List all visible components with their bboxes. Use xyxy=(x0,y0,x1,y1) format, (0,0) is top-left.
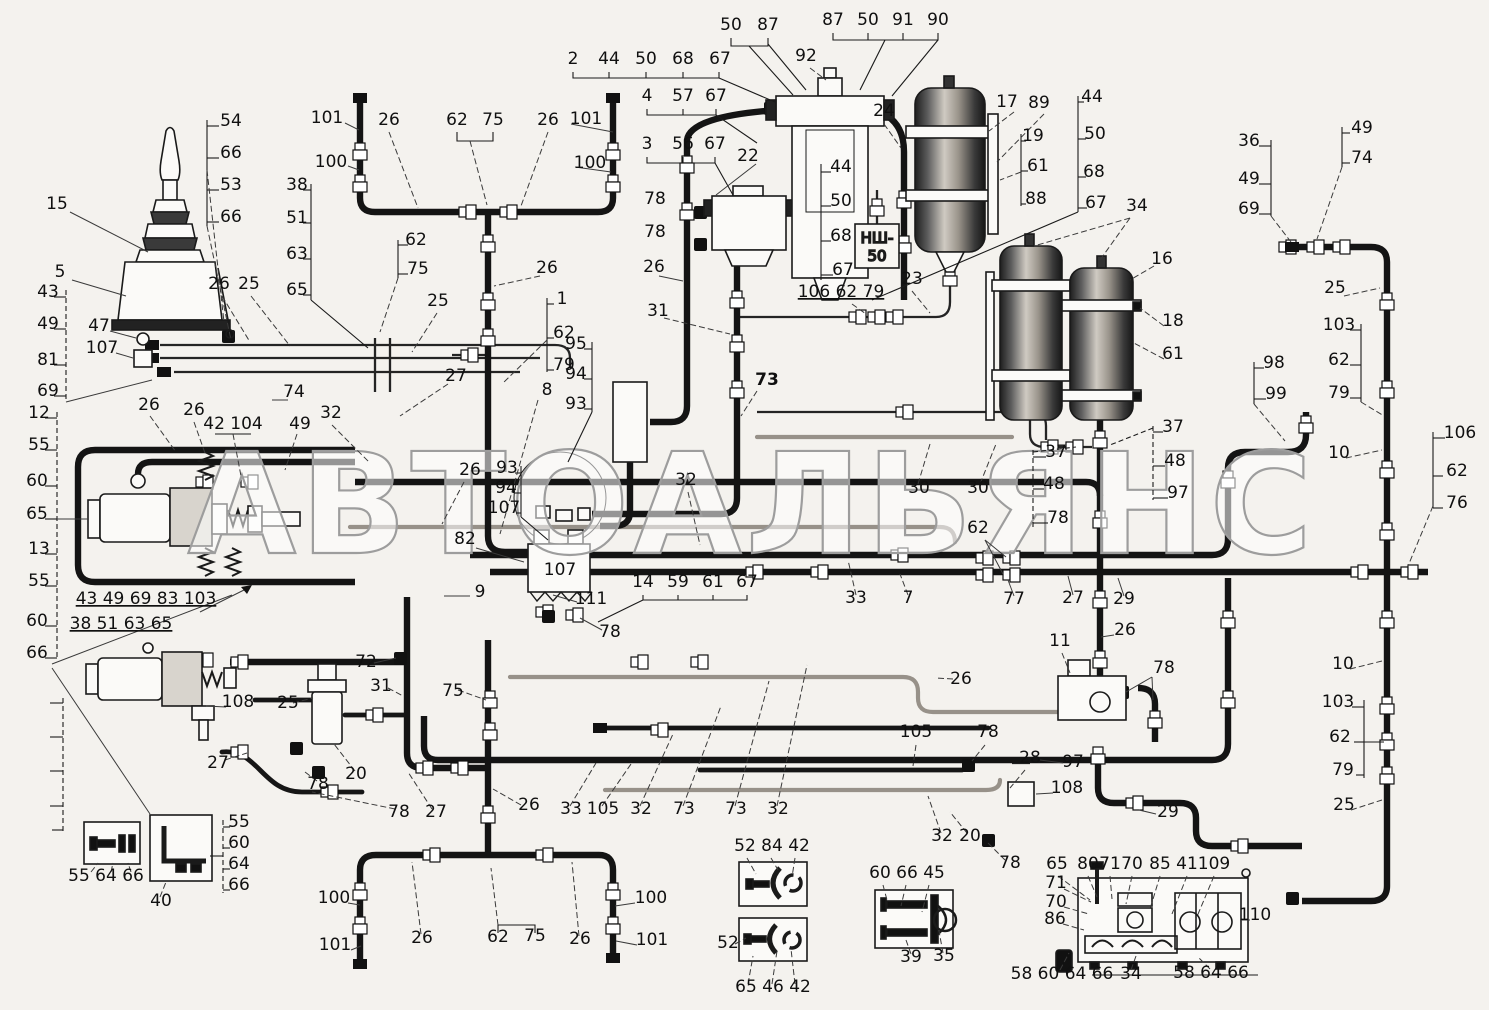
callout-leader xyxy=(664,318,730,334)
callout-leader xyxy=(491,868,498,925)
part-label-65: 65 xyxy=(26,504,48,524)
part-label-69: 69 xyxy=(37,381,59,401)
pipe-union-fitting xyxy=(353,883,367,900)
part-label-63: 63 xyxy=(286,244,308,264)
part-label-50: 50 xyxy=(635,49,657,69)
part-label-62: 62 xyxy=(1446,461,1468,481)
part-label-53: 53 xyxy=(220,175,242,195)
pipe-union-fitting xyxy=(730,291,744,308)
part-label-67: 67 xyxy=(709,49,731,69)
part-label-74: 74 xyxy=(1351,148,1373,168)
pipe-union-fitting xyxy=(680,156,694,173)
part-label-26: 26 xyxy=(950,669,972,689)
nsh-50-pump-box: НШ- 50 xyxy=(855,224,899,268)
pipe-union-fitting xyxy=(1231,839,1248,853)
part-label-27: 27 xyxy=(207,753,229,773)
part-label-66: 66 xyxy=(220,143,242,163)
elbow-fitting xyxy=(1286,892,1299,905)
callout-leader xyxy=(912,291,930,313)
part-label-110: 110 xyxy=(1239,905,1271,925)
part-label-62: 62 xyxy=(1329,727,1351,747)
elbow-fitting xyxy=(542,610,555,623)
callout-bracket xyxy=(833,33,938,40)
hose-end-cap xyxy=(353,93,367,103)
part-label-26: 26 xyxy=(208,274,230,294)
hose-end-cap xyxy=(606,953,620,963)
pipe-union-fitting xyxy=(353,143,367,160)
part-label-101: 101 xyxy=(636,930,668,950)
part-label-67: 67 xyxy=(705,86,727,106)
part-label-95: 95 xyxy=(565,334,587,354)
part-label-78: 78 xyxy=(388,802,410,822)
part-label-78: 78 xyxy=(1153,658,1175,678)
part-label-76: 76 xyxy=(1446,493,1468,513)
part-label-107: 107 xyxy=(86,338,118,358)
callout-bracket xyxy=(719,78,775,102)
part-label-70: 70 xyxy=(1121,854,1143,874)
pipe-union-fitting xyxy=(606,883,620,900)
part-label-62: 62 xyxy=(967,518,989,538)
part-label-78: 78 xyxy=(999,853,1021,873)
part-label-105: 105 xyxy=(900,722,932,742)
part-label-49: 49 xyxy=(289,414,311,434)
part-label-73: 73 xyxy=(755,370,779,390)
pipe-union-fitting xyxy=(1380,523,1394,540)
pipe-union-fitting xyxy=(451,761,468,775)
kit-box-40 xyxy=(150,815,212,881)
kit-box-55-64-66 xyxy=(84,822,140,864)
callout-leader xyxy=(572,862,579,936)
gray-hose xyxy=(605,780,1000,790)
part-label-61: 61 xyxy=(702,572,724,592)
callout-leader xyxy=(470,141,487,205)
callout-leader xyxy=(312,792,395,809)
part-label-79: 79 xyxy=(1328,383,1350,403)
pipe-union-fitting xyxy=(1093,591,1107,608)
part-label-74: 74 xyxy=(283,382,305,402)
part-label-50: 50 xyxy=(1084,124,1106,144)
part-label-30: 30 xyxy=(967,478,989,498)
part-label-78: 78 xyxy=(644,189,666,209)
part-label-26: 26 xyxy=(138,395,160,415)
pipe-union-fitting xyxy=(536,848,553,862)
pipe-union-fitting xyxy=(1093,651,1107,668)
callout-bracket xyxy=(731,38,768,46)
pipe-union-fitting xyxy=(896,405,913,419)
callout-bracket xyxy=(647,109,716,115)
part-label-78: 78 xyxy=(1047,508,1069,528)
part-label-97: 97 xyxy=(1167,483,1189,503)
pipe-union-fitting xyxy=(416,761,433,775)
part-label-25: 25 xyxy=(277,693,299,713)
part-label-59: 59 xyxy=(667,572,689,592)
nsh-50-label-line1: НШ- xyxy=(861,229,894,247)
part-label-25: 25 xyxy=(427,291,449,311)
part-label-101: 101 xyxy=(311,108,343,128)
part-label-49: 49 xyxy=(1238,169,1260,189)
pipe-union-fitting xyxy=(1380,611,1394,628)
part-label-58-60-64-66: 58 60 64 66 xyxy=(1011,964,1114,984)
watermark-text: АВТОАЛЬЯНС xyxy=(188,424,1317,587)
callout-leader xyxy=(521,132,548,206)
pipe-union-fitting xyxy=(1091,747,1105,764)
part-label-52-84-42: 52 84 42 xyxy=(734,836,810,856)
part-label-77: 77 xyxy=(1003,589,1025,609)
part-label-25: 25 xyxy=(1333,795,1355,815)
part-label-55: 55 xyxy=(28,435,50,455)
pipe-union-fitting xyxy=(730,335,744,352)
part-label-103: 103 xyxy=(1322,692,1354,712)
part-label-32: 32 xyxy=(630,799,652,819)
callout-leader xyxy=(412,862,421,934)
part-label-69: 69 xyxy=(1238,199,1260,219)
part-label-43: 43 xyxy=(37,282,59,302)
part-label-34: 34 xyxy=(1126,196,1148,216)
part-label-67: 67 xyxy=(832,260,854,280)
part-label-92: 92 xyxy=(795,46,817,66)
part-label-12: 12 xyxy=(28,403,50,423)
part-label-79: 79 xyxy=(1332,760,1354,780)
part-label-39: 39 xyxy=(900,947,922,967)
part-label-42-104: 42 104 xyxy=(203,414,262,434)
part-label-50: 50 xyxy=(857,10,879,30)
pipe-union-fitting xyxy=(651,723,668,737)
callout-bracket xyxy=(715,163,733,195)
part-label-26: 26 xyxy=(183,400,205,420)
part-label-44: 44 xyxy=(598,49,620,69)
callout-leader xyxy=(1408,506,1433,566)
callout-leader xyxy=(116,353,133,358)
pipe-union-fitting xyxy=(1126,796,1143,810)
part-label-25: 25 xyxy=(238,274,260,294)
part-label-35: 35 xyxy=(933,946,955,966)
part-label-50: 50 xyxy=(830,191,852,211)
callout-leader xyxy=(616,941,637,945)
callout-leader xyxy=(1350,661,1382,669)
part-label-60-66-45: 60 66 45 xyxy=(869,863,945,883)
part-label-49: 49 xyxy=(1351,118,1373,138)
pipe-union-fitting xyxy=(481,235,495,252)
callout-leader xyxy=(380,278,398,332)
pipe-union-fitting xyxy=(353,917,367,934)
part-label-54: 54 xyxy=(220,111,242,131)
part-label-15: 15 xyxy=(46,194,68,214)
parts-diagram-page: НШ- 50 xyxy=(0,0,1489,1010)
part-label-31: 31 xyxy=(647,301,669,321)
callout-leader xyxy=(70,212,148,252)
part-label-19: 19 xyxy=(1022,126,1044,146)
pipe-union-fitting xyxy=(1221,691,1235,708)
part-label-67: 67 xyxy=(736,572,758,592)
pipe-union-fitting xyxy=(606,175,620,192)
elbow-fitting xyxy=(290,742,303,755)
part-label-49: 49 xyxy=(37,314,59,334)
pipe-union-fitting xyxy=(1221,611,1235,628)
hose-end-cap xyxy=(593,723,607,733)
pipe-union-fitting xyxy=(1148,711,1162,728)
gray-hose xyxy=(510,677,1058,712)
nsh-50-label-line2: 50 xyxy=(867,247,886,265)
hose-end-cap xyxy=(157,367,171,377)
part-label-66: 66 xyxy=(228,875,250,895)
callout-leader xyxy=(1100,218,1130,260)
part-label-86: 86 xyxy=(1044,909,1066,929)
part-label-68: 68 xyxy=(830,226,852,246)
part-label-3: 3 xyxy=(642,134,653,154)
hose-end-cap xyxy=(606,93,620,103)
part-label-23: 23 xyxy=(901,269,923,289)
pipe-union-fitting xyxy=(1307,240,1324,254)
part-label-68: 68 xyxy=(1083,162,1105,182)
part-label-58-64-66: 58 64 66 xyxy=(1173,963,1249,983)
part-label-37: 37 xyxy=(1162,417,1184,437)
part-label-98: 98 xyxy=(1263,353,1285,373)
part-label-106: 106 xyxy=(1444,423,1476,443)
part-label-90: 90 xyxy=(927,10,949,30)
part-label-34: 34 xyxy=(1120,964,1142,984)
part-label-20: 20 xyxy=(345,764,367,784)
part-label-27: 27 xyxy=(425,802,447,822)
part-label-105: 105 xyxy=(587,799,619,819)
part-label-100: 100 xyxy=(574,153,606,173)
part-label-75: 75 xyxy=(482,110,504,130)
part-label-60: 60 xyxy=(26,471,48,491)
part-label-47: 47 xyxy=(88,316,110,336)
part-label-87: 87 xyxy=(822,10,844,30)
part-label-78: 78 xyxy=(599,622,621,642)
part-label-82: 82 xyxy=(454,529,476,549)
part-label-94: 94 xyxy=(495,478,517,498)
part-label-18: 18 xyxy=(1162,311,1184,331)
pipe-union-fitting xyxy=(461,348,478,362)
part-label-93: 93 xyxy=(565,394,587,414)
pipe-union-fitting xyxy=(1401,565,1418,579)
pipe-union-fitting xyxy=(481,806,495,823)
part-label-32: 32 xyxy=(320,403,342,423)
part-label-26: 26 xyxy=(378,110,400,130)
part-label-40: 40 xyxy=(150,891,172,911)
part-label-78: 78 xyxy=(977,722,999,742)
part-label-26: 26 xyxy=(569,929,591,949)
elbow-fitting xyxy=(982,834,995,847)
part-label-32: 32 xyxy=(675,470,697,490)
pipe-union-fitting xyxy=(1380,697,1394,714)
part-label-72: 72 xyxy=(355,652,377,672)
pipe-union-fitting xyxy=(481,329,495,346)
part-label-75: 75 xyxy=(524,926,546,946)
part-label-62: 62 xyxy=(1328,350,1350,370)
hydraulic-piping-diagram: НШ- 50 xyxy=(0,0,1489,1010)
part-label-100: 100 xyxy=(635,888,667,908)
part-label-100: 100 xyxy=(315,152,347,172)
part-label-26: 26 xyxy=(643,257,665,277)
part-label-94: 94 xyxy=(565,364,587,384)
protection-valve-11 xyxy=(1058,660,1126,720)
callout-leader xyxy=(150,416,176,452)
callout-leader xyxy=(1344,288,1380,296)
callout-leader xyxy=(72,280,126,296)
pipe-union-fitting xyxy=(1351,565,1368,579)
pipe-union-fitting xyxy=(1380,381,1394,398)
pipe-union-fitting xyxy=(481,293,495,310)
part-label-75: 75 xyxy=(407,259,429,279)
part-label-5: 5 xyxy=(55,262,66,282)
pipe-union-fitting xyxy=(353,175,367,192)
part-label-50: 50 xyxy=(720,15,742,35)
part-label-89: 89 xyxy=(1028,93,1050,113)
part-label-33: 33 xyxy=(845,588,867,608)
part-label-103: 103 xyxy=(1323,315,1355,335)
kit-box-52-84-42 xyxy=(739,862,807,906)
callout-bracket xyxy=(311,300,368,348)
callout-leader xyxy=(110,331,136,338)
part-label-7: 7 xyxy=(903,588,914,608)
kit-box-65-46-42 xyxy=(739,918,807,961)
part-label-55: 55 xyxy=(228,812,250,832)
part-label-38-51-63-65: 38 51 63 65 xyxy=(70,614,173,634)
filter-component-20 xyxy=(308,664,346,744)
callout-leader xyxy=(389,132,418,208)
part-label-27: 27 xyxy=(445,366,467,386)
part-label-65-46-42: 65 46 42 xyxy=(735,977,811,997)
part-label-14: 14 xyxy=(632,572,654,592)
callout-bracket xyxy=(749,46,793,95)
callout-leader xyxy=(640,734,673,806)
callout-leader xyxy=(494,276,540,286)
callout-leader xyxy=(735,681,769,806)
part-label-101: 101 xyxy=(319,935,351,955)
callout-bracket xyxy=(647,157,715,163)
pipe-union-fitting xyxy=(1380,767,1394,784)
part-label-87: 87 xyxy=(757,15,779,35)
part-label-17: 17 xyxy=(996,92,1018,112)
part-label-88: 88 xyxy=(1025,189,1047,209)
part-label-108: 108 xyxy=(1051,778,1083,798)
callout-leader xyxy=(1361,402,1384,416)
pipe-union-fitting xyxy=(366,708,383,722)
part-label-31: 31 xyxy=(370,676,392,696)
part-label-26: 26 xyxy=(1114,620,1136,640)
hose-end-cap xyxy=(353,959,367,969)
part-label-26: 26 xyxy=(459,460,481,480)
part-label-10: 10 xyxy=(1332,654,1354,674)
part-label-100: 100 xyxy=(318,888,350,908)
fitting-107 xyxy=(134,350,152,367)
part-label-4: 4 xyxy=(642,86,653,106)
part-label-61: 61 xyxy=(1162,344,1184,364)
part-label-109: 109 xyxy=(1198,854,1230,874)
part-label-65: 65 xyxy=(1046,854,1068,874)
callout-leader xyxy=(1140,308,1164,326)
part-label-56: 56 xyxy=(672,134,694,154)
part-label-73: 73 xyxy=(725,799,747,819)
hose-end-cap xyxy=(1285,242,1299,252)
part-label-25: 25 xyxy=(1324,278,1346,298)
callout-leader xyxy=(615,903,635,906)
part-label-48: 48 xyxy=(1164,451,1186,471)
part-label-78: 78 xyxy=(644,222,666,242)
callout-leader xyxy=(1351,800,1382,810)
part-label-13: 13 xyxy=(28,539,50,559)
callout-leader xyxy=(1317,167,1342,239)
callout-leader xyxy=(493,789,521,805)
part-label-107: 107 xyxy=(488,498,520,518)
pipe-union-fitting xyxy=(459,205,476,219)
callout-bracket xyxy=(860,40,885,90)
part-label-65: 65 xyxy=(286,280,308,300)
pipe-union-fitting xyxy=(500,205,517,219)
part-label-57: 57 xyxy=(672,86,694,106)
part-label-38: 38 xyxy=(286,175,308,195)
part-label-26: 26 xyxy=(518,795,540,815)
part-label-55-64-66: 55 64 66 xyxy=(68,866,144,886)
part-label-62: 62 xyxy=(487,927,509,947)
part-label-85: 85 xyxy=(1149,854,1171,874)
fitting-47 xyxy=(137,333,149,345)
part-label-10: 10 xyxy=(1328,443,1350,463)
part-label-97: 97 xyxy=(1062,752,1084,772)
part-label-108: 108 xyxy=(222,692,254,712)
part-label-68: 68 xyxy=(672,49,694,69)
pipe-union-fitting xyxy=(483,723,497,740)
callout-leader xyxy=(777,665,807,806)
part-label-80: 80 xyxy=(1077,854,1099,874)
thin-pipe xyxy=(160,345,570,368)
callout-leader xyxy=(502,340,547,384)
part-label-60: 60 xyxy=(26,611,48,631)
part-label-2: 2 xyxy=(568,49,579,69)
pipe-union-fitting xyxy=(423,848,440,862)
part-label-44: 44 xyxy=(1081,87,1103,107)
part-label-1: 1 xyxy=(557,289,568,309)
part-label-29: 29 xyxy=(1113,589,1135,609)
part-label-75: 75 xyxy=(442,681,464,701)
part-label-48: 48 xyxy=(1043,474,1065,494)
callout-leader xyxy=(1139,810,1156,814)
part-label-71: 71 xyxy=(1099,854,1121,874)
air-tank-34 xyxy=(986,234,1070,420)
pipe-union-fitting xyxy=(730,381,744,398)
pipe-union-fitting xyxy=(1380,293,1394,310)
part-label-71: 71 xyxy=(1045,873,1067,893)
callout-leader xyxy=(400,384,448,416)
callout-leader xyxy=(1000,172,1021,180)
part-label-11: 11 xyxy=(1049,631,1071,651)
part-label-66: 66 xyxy=(220,207,242,227)
pipe-union-fitting xyxy=(680,203,694,220)
part-label-60: 60 xyxy=(228,833,250,853)
pipe-union-fitting xyxy=(691,655,708,669)
part-label-32: 32 xyxy=(767,799,789,819)
oil-filter-22 xyxy=(704,186,794,266)
part-label-107: 107 xyxy=(544,560,576,580)
part-label-26: 26 xyxy=(537,110,559,130)
callout-bracket xyxy=(457,132,493,141)
part-label-26: 26 xyxy=(411,928,433,948)
callout-leader xyxy=(1034,218,1130,246)
part-label-37: 37 xyxy=(1045,442,1067,462)
part-label-66: 66 xyxy=(26,643,48,663)
part-label-36: 36 xyxy=(1238,131,1260,151)
callout-leader xyxy=(1271,216,1291,242)
part-label-55: 55 xyxy=(28,571,50,591)
callout-leader xyxy=(251,296,290,346)
callout-bracket xyxy=(643,595,747,600)
pipe-union-fitting xyxy=(606,143,620,160)
part-label-43-49-69-83-103: 43 49 69 83 103 xyxy=(76,589,217,609)
part-label-61: 61 xyxy=(1027,156,1049,176)
part-label-78: 78 xyxy=(307,774,329,794)
